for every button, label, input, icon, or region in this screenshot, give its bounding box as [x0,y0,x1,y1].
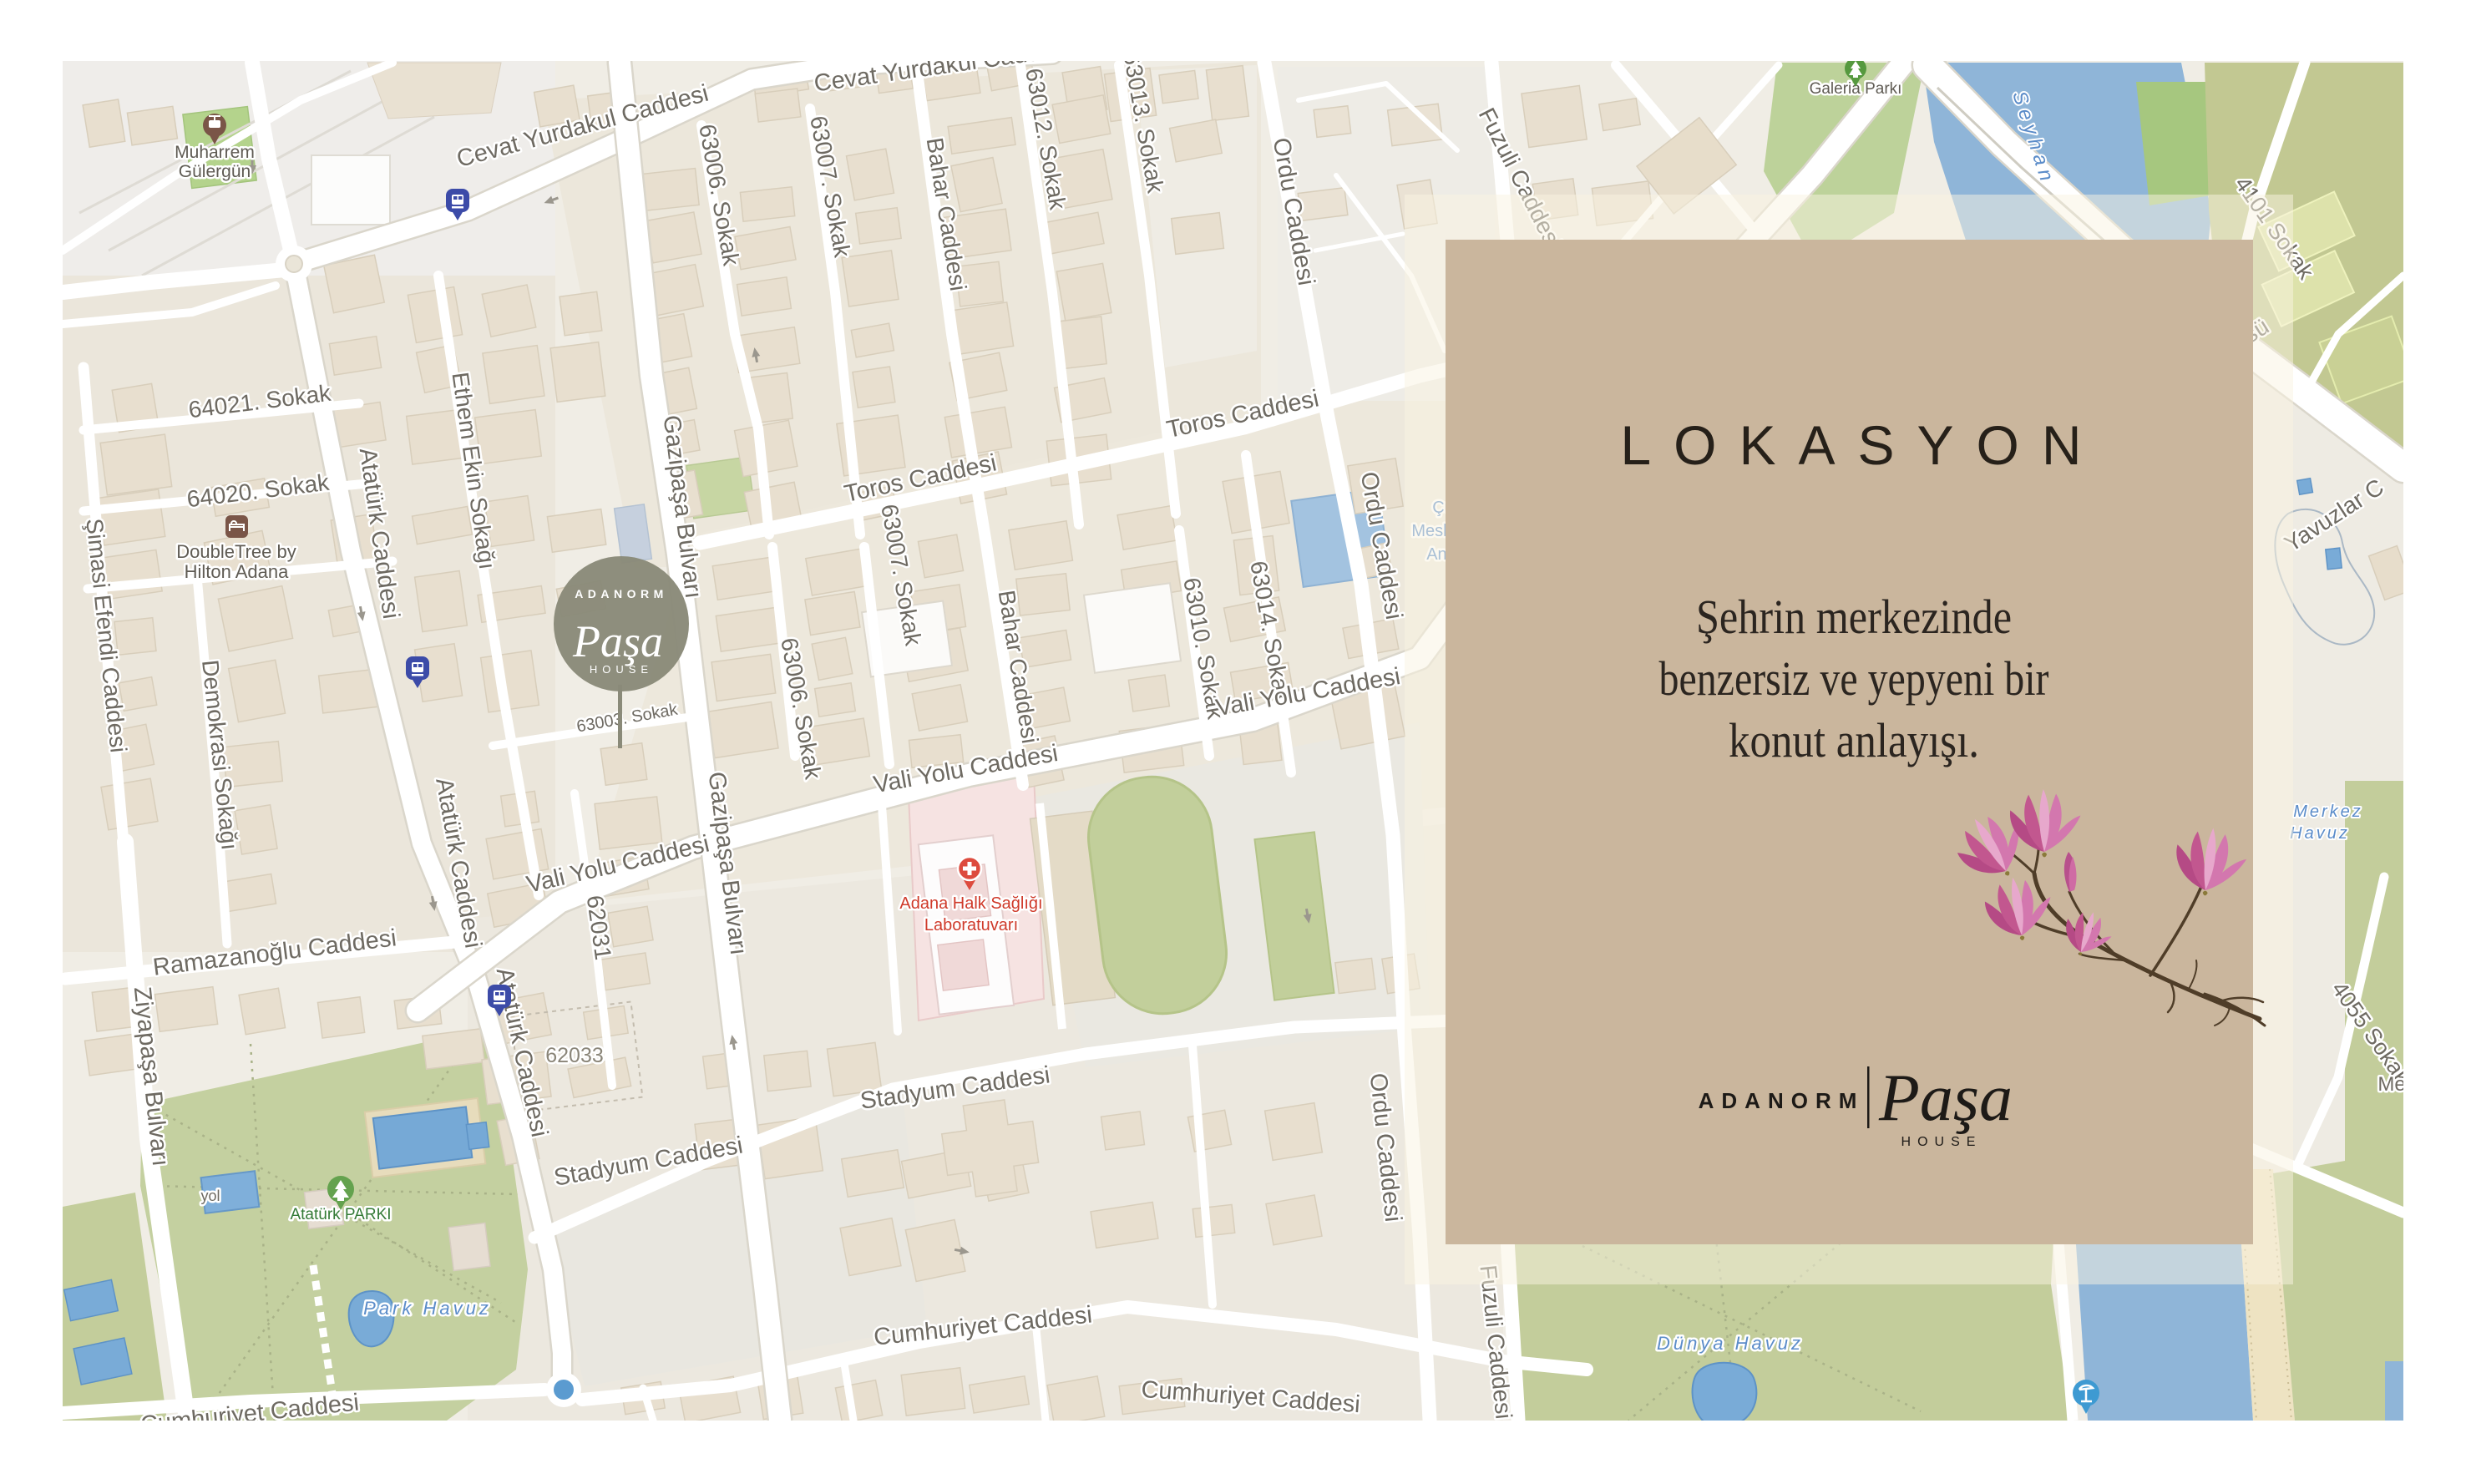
svg-text:benzersiz ve yepyeni bir: benzersiz ve yepyeni bir [1659,651,2049,706]
svg-text:Park Havuz: Park Havuz [363,1298,492,1319]
svg-text:Havuz: Havuz [2290,824,2350,843]
svg-text:Gülergün: Gülergün [179,162,251,181]
svg-text:Hilton Adana: Hilton Adana [185,561,290,582]
svg-text:Merkez: Merkez [2293,803,2363,821]
svg-text:ADANORM: ADANORM [575,587,668,600]
svg-text:HOUSE: HOUSE [590,663,653,676]
svg-text:Dünya Havuz: Dünya Havuz [1657,1333,1804,1354]
svg-text:yol: yol [200,1188,220,1204]
svg-text:Adana Halk Sağlığı: Adana Halk Sağlığı [899,894,1042,913]
svg-text:HOUSE: HOUSE [1901,1135,1982,1149]
svg-text:Paşa: Paşa [1878,1061,2013,1135]
svg-text:Muharrem: Muharrem [175,143,255,162]
svg-text:Laboratuvarı: Laboratuvarı [924,916,1018,934]
svg-text:LOKASYON: LOKASYON [1620,414,2104,476]
svg-text:konut anlayışı.: konut anlayışı. [1729,713,1979,767]
svg-text:Paşa: Paşa [572,616,663,666]
svg-text:DoubleTree by: DoubleTree by [176,541,296,562]
svg-text:62033: 62033 [545,1044,604,1067]
svg-text:Şehrin merkezinde: Şehrin merkezinde [1696,590,2012,644]
svg-text:ADANORM: ADANORM [1699,1088,1865,1113]
